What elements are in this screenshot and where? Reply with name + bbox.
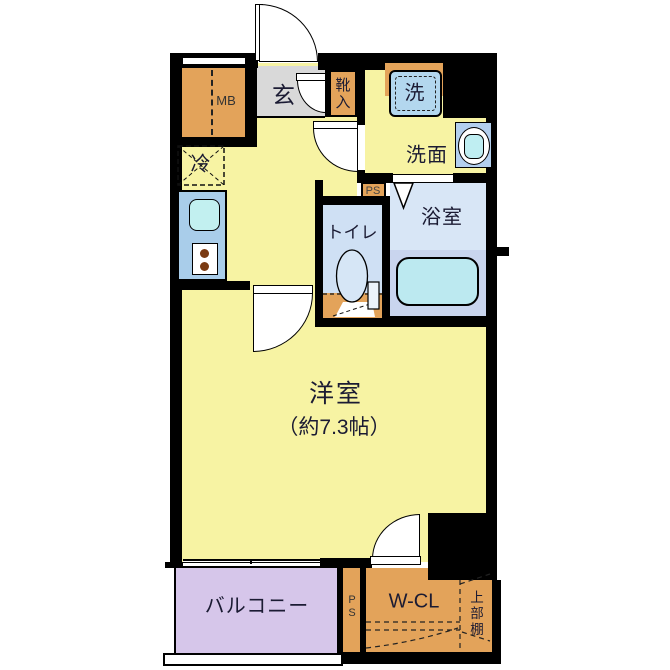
vanity-basin (464, 134, 484, 159)
meter-box-label: MB (216, 94, 236, 108)
upper-shelf-label: 上部棚 (470, 590, 485, 638)
western-room-size-label: （約7.3帖） (277, 417, 390, 439)
bathroom-label: 浴室 (421, 208, 463, 229)
floor-plan-canvas: 玄 靴入 洗 洗面 浴室 トイレ 冷 MB PS PS 洋室 （約7.3帖） バ… (0, 0, 670, 670)
wall-kitchen-bottom (170, 281, 250, 290)
entrance-step-line (257, 116, 325, 118)
wall-right-stub (497, 247, 509, 256)
shoe-cabinet-label: 靴入 (335, 77, 352, 111)
washer-label: 洗 (405, 84, 426, 105)
bathroom-folding-door-icon (393, 182, 414, 210)
wall-washroom-bottom-a (365, 173, 393, 183)
pipe-space-lower-label: PS (347, 594, 357, 620)
wall-corner-top-right (443, 53, 497, 118)
wall-wcl-right (492, 580, 501, 653)
meter-box-divider (211, 70, 213, 135)
wall-top-washer (385, 53, 443, 63)
wall-bottom-left-stub (165, 562, 183, 568)
window-balcony-tick (250, 559, 252, 564)
refrigerator-label: 冷 (191, 155, 212, 176)
wall-washroom-bottom-b (453, 173, 497, 183)
walk-in-closet-label: W-CL (389, 592, 440, 613)
wall-bottom-thick (343, 652, 501, 664)
entrance-label: 玄 (272, 83, 296, 107)
wall-washroom-upper (357, 53, 365, 125)
kitchen-sink (189, 199, 220, 231)
balcony-rail (163, 653, 343, 666)
wall-mb-right (245, 53, 257, 147)
western-room-label: 洋室 (309, 381, 363, 407)
entrance-door-swing (259, 4, 318, 62)
closet-door-leaf (370, 556, 421, 565)
balcony-label: バルコニー (205, 597, 310, 618)
toilet-fixture (323, 205, 382, 318)
window-meter-box (183, 56, 246, 66)
bathtub (396, 257, 479, 306)
toilet-label: トイレ (327, 224, 378, 242)
wall-ps-left (337, 562, 343, 653)
stove-burner-2 (200, 262, 209, 271)
wall-toilet-right (382, 196, 390, 327)
wall-left (170, 53, 182, 568)
pipe-space-upper-label: PS (366, 186, 381, 198)
stove-burner-1 (200, 249, 209, 258)
wall-washroom-lower (357, 170, 365, 183)
washroom-label: 洗面 (406, 146, 448, 167)
